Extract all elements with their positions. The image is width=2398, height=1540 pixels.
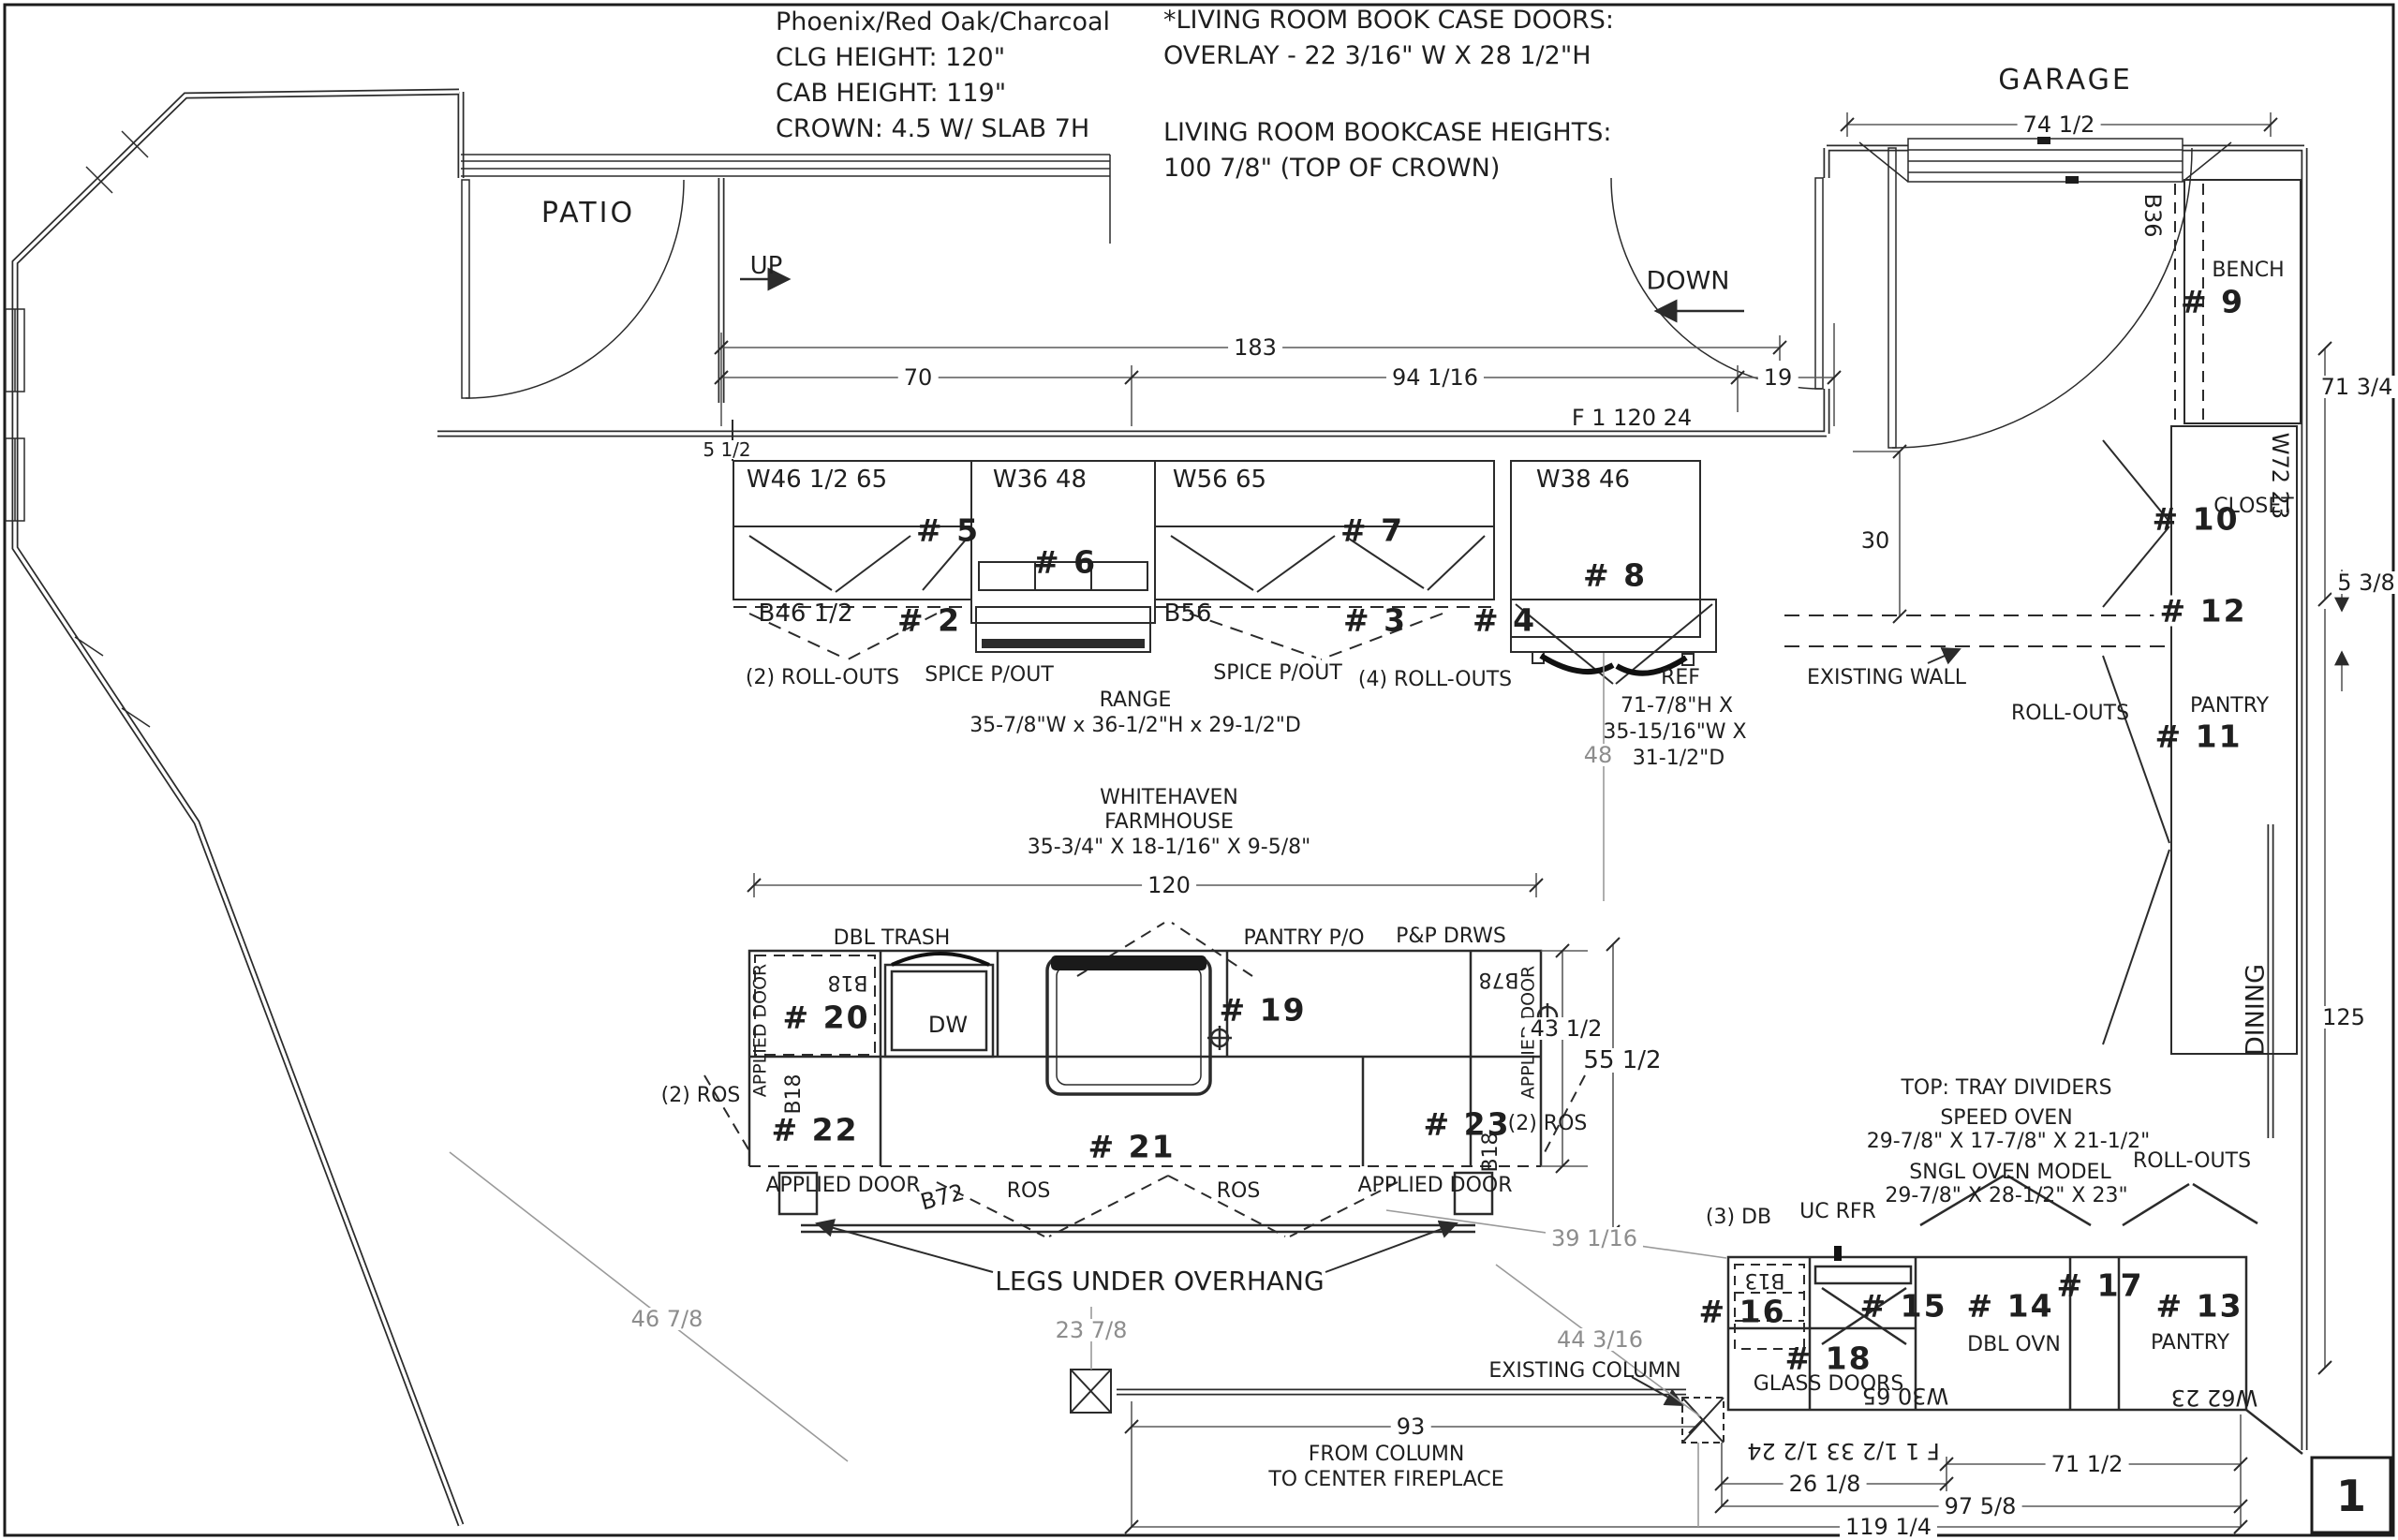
stair-label-down: DOWN <box>1647 269 1730 294</box>
cab-number-3: # 3 <box>1343 605 1407 636</box>
cab-number-18: # 18 <box>1784 1343 1872 1374</box>
wall-tag-top: F 1 120 24 <box>1572 407 1692 429</box>
cab-number-2: # 2 <box>897 605 961 636</box>
cab-number-22: # 22 <box>771 1115 858 1146</box>
note-legs-under-overhang: LEGS UNDER OVERHANG <box>995 1268 1324 1295</box>
cab-number-21: # 21 <box>1088 1132 1175 1162</box>
cab-number-13: # 13 <box>2155 1291 2243 1322</box>
dim-col-to-cab: 26 1/8 <box>1784 1473 1867 1495</box>
note-dbl-ovn: DBL OVN <box>1967 1335 2061 1355</box>
note-rollouts-4: (4) ROLL-OUTS <box>1358 670 1512 690</box>
note-pantry-oven-wall: PANTRY <box>2151 1333 2229 1354</box>
note-rollouts-right: ROLL-OUTS <box>2011 703 2129 724</box>
note-ref-h: 71-7/8"H X <box>1621 696 1733 717</box>
dim-island-length: 120 <box>1142 874 1196 896</box>
cab-number-14: # 14 <box>1966 1291 2053 1322</box>
dim-island-overall: 55 1/2 <box>1577 1048 1666 1073</box>
cab-label-b18-left: B18 <box>784 1074 805 1114</box>
note-bookcase-heights-2: 100 7/8" (TOP OF CROWN) <box>1163 155 1500 181</box>
note-pp-drws: P&P DRWS <box>1396 926 1506 947</box>
note-sngl-oven: SNGL OVEN MODEL <box>1909 1162 2110 1183</box>
note-tray-dividers: TOP: TRAY DIVIDERS <box>1901 1078 2111 1099</box>
note-finish: Phoenix/Red Oak/Charcoal <box>776 9 1110 35</box>
note-existing-column: EXISTING COLUMN <box>1488 1361 1680 1382</box>
note-closet: CLOSET <box>2213 496 2293 517</box>
cab-number-12: # 12 <box>2154 596 2252 627</box>
note-applied-door-br: APPLIED DOOR <box>1357 1176 1512 1196</box>
note-ros-2-left: (2) ROS <box>661 1086 741 1106</box>
note-ref: REF <box>1661 668 1700 689</box>
dim-dining-height: 125 <box>2317 1006 2371 1029</box>
dim-fridge-recess: 30 <box>1856 529 1896 552</box>
note-speed-oven: SPEED OVEN <box>1940 1108 2072 1129</box>
note-rollouts-oven-wall: ROLL-OUTS <box>2133 1151 2251 1172</box>
dim-aisle: 48 <box>1578 744 1619 766</box>
note-applied-door-bl: APPLIED DOOR <box>765 1176 920 1196</box>
dim-clearance-left: 46 7/8 <box>626 1308 709 1330</box>
cab-label-b13: B13 <box>1744 1269 1784 1290</box>
note-from-column-1: FROM COLUMN <box>1309 1444 1465 1465</box>
cab-number-4: # 4 <box>1473 605 1536 636</box>
cab-label-b46: B46 1/2 <box>758 601 852 626</box>
dim-clearance-right: 44 3/16 <box>1551 1328 1649 1351</box>
note-3-db: (3) DB <box>1706 1207 1771 1228</box>
note-bookcase-doors-1: *LIVING ROOM BOOK CASE DOORS: <box>1163 7 1614 33</box>
note-range: RANGE <box>1100 690 1172 711</box>
cab-number-20: # 20 <box>782 1002 869 1033</box>
note-speed-oven-size: 29-7/8" X 17-7/8" X 21-1/2" <box>1867 1132 2151 1152</box>
dim-top-left: 70 <box>898 366 939 389</box>
note-uc-rfr: UC RFR <box>1799 1202 1876 1222</box>
note-ros-2: ROS <box>1217 1181 1261 1202</box>
note-sink-brand: WHITEHAVEN <box>1100 788 1238 808</box>
note-sink-size: 35-3/4" X 18-1/16" X 9-5/8" <box>1028 837 1311 858</box>
note-bench: BENCH <box>2212 260 2284 281</box>
note-sink-model: FARMHOUSE <box>1104 812 1234 833</box>
appliance-label-dw: DW <box>928 1014 968 1036</box>
cab-label-w36: W36 48 <box>993 467 1087 492</box>
wall-tag-bottom: F 1 1/2 33 1/2 24 <box>1747 1440 1940 1462</box>
dim-island-depth: 43 1/2 <box>1525 1017 1608 1040</box>
dim-clearance-diag: 39 1/16 <box>1546 1227 1643 1250</box>
note-applied-door-left: APPLIED DOOR <box>752 964 770 1098</box>
page-number: 1 <box>2336 1474 2366 1518</box>
dim-to-fireplace: 93 <box>1391 1415 1431 1438</box>
dim-top-right: 19 <box>1758 366 1798 389</box>
note-crown: CROWN: 4.5 W/ SLAB 7H <box>776 116 1089 141</box>
cab-label-b18-right: B18 <box>1481 1132 1502 1172</box>
cab-label-w30: W30 65 <box>1862 1385 1948 1407</box>
room-label-patio: PATIO <box>541 200 635 228</box>
note-dbl-trash: DBL TRASH <box>834 928 951 949</box>
room-label-garage: GARAGE <box>1998 67 2133 95</box>
dim-wall-gap: 5 3/8 <box>2331 571 2398 594</box>
note-existing-wall: EXISTING WALL <box>1807 668 1966 689</box>
cab-label-b36: B36 <box>2141 193 2164 237</box>
cab-number-19: # 19 <box>1219 995 1306 1026</box>
note-cab-height: CAB HEIGHT: 119" <box>776 81 1006 106</box>
cab-label-b78: B78 <box>1478 969 1518 989</box>
note-ros-2-right: (2) ROS <box>1508 1114 1588 1134</box>
note-bookcase-doors-2: OVERLAY - 22 3/16" W X 28 1/2"H <box>1163 43 1591 68</box>
dim-clearance-center: 23 7/8 <box>1050 1319 1133 1341</box>
note-pantry-po: PANTRY P/O <box>1243 928 1364 949</box>
note-ref-w: 35-15/16"W X <box>1603 722 1746 743</box>
dim-right-upper: 71 3/4 <box>2316 376 2398 398</box>
dim-bottom-mid: 97 5/8 <box>1939 1495 2022 1518</box>
cab-label-w62: W62 23 <box>2171 1386 2257 1409</box>
note-bookcase-heights-1: LIVING ROOM BOOKCASE HEIGHTS: <box>1163 120 1611 145</box>
cab-number-17: # 17 <box>2056 1270 2143 1301</box>
note-clg-height: CLG HEIGHT: 120" <box>776 45 1005 70</box>
dim-garage-opening: 74 1/2 <box>2018 113 2101 136</box>
stair-label-up: UP <box>750 254 783 278</box>
cab-label-w56: W56 65 <box>1173 467 1266 492</box>
note-rollouts-2: (2) ROLL-OUTS <box>746 668 899 689</box>
cab-label-w46: W46 1/2 65 <box>747 467 887 492</box>
note-spice-2: SPICE P/OUT <box>1213 663 1342 684</box>
note-ref-d: 31-1/2"D <box>1633 748 1724 769</box>
cab-label-b56: B56 <box>1164 601 1212 626</box>
note-spice-1: SPICE P/OUT <box>925 665 1054 686</box>
cab-label-b18-top: B18 <box>827 971 867 992</box>
note-range-size: 35-7/8"W x 36-1/2"H x 29-1/2"D <box>970 716 1301 736</box>
cab-label-w38: W38 46 <box>1536 467 1630 492</box>
note-pantry-right: PANTRY <box>2190 696 2269 717</box>
cab-number-16: # 16 <box>1698 1296 1785 1327</box>
dim-bottom-overall: 119 1/4 <box>1840 1516 1937 1538</box>
floorplan-sheet: Phoenix/Red Oak/Charcoal CLG HEIGHT: 120… <box>0 0 2398 1540</box>
dim-filler: 5 1/2 <box>697 440 756 459</box>
dim-top-mid: 94 1/16 <box>1386 366 1484 389</box>
note-sngl-oven-size: 29-7/8" X 28-1/2" X 23" <box>1885 1186 2127 1207</box>
cab-number-11: # 11 <box>2154 721 2242 752</box>
cab-number-9: # 9 <box>2181 287 2244 318</box>
dim-bottom-inner: 71 1/2 <box>2046 1453 2129 1475</box>
cab-number-15: # 15 <box>1859 1291 1947 1322</box>
cab-number-5: # 5 <box>916 515 980 546</box>
room-label-dining: DINING <box>2243 964 2269 1056</box>
note-from-column-2: TO CENTER FIREPLACE <box>1268 1470 1503 1490</box>
cab-number-7: # 7 <box>1340 515 1404 546</box>
cab-number-6: # 6 <box>1033 547 1097 578</box>
cab-number-8: # 8 <box>1583 560 1647 591</box>
note-ros-1: ROS <box>1007 1181 1051 1202</box>
dim-top-overall: 183 <box>1228 336 1282 359</box>
